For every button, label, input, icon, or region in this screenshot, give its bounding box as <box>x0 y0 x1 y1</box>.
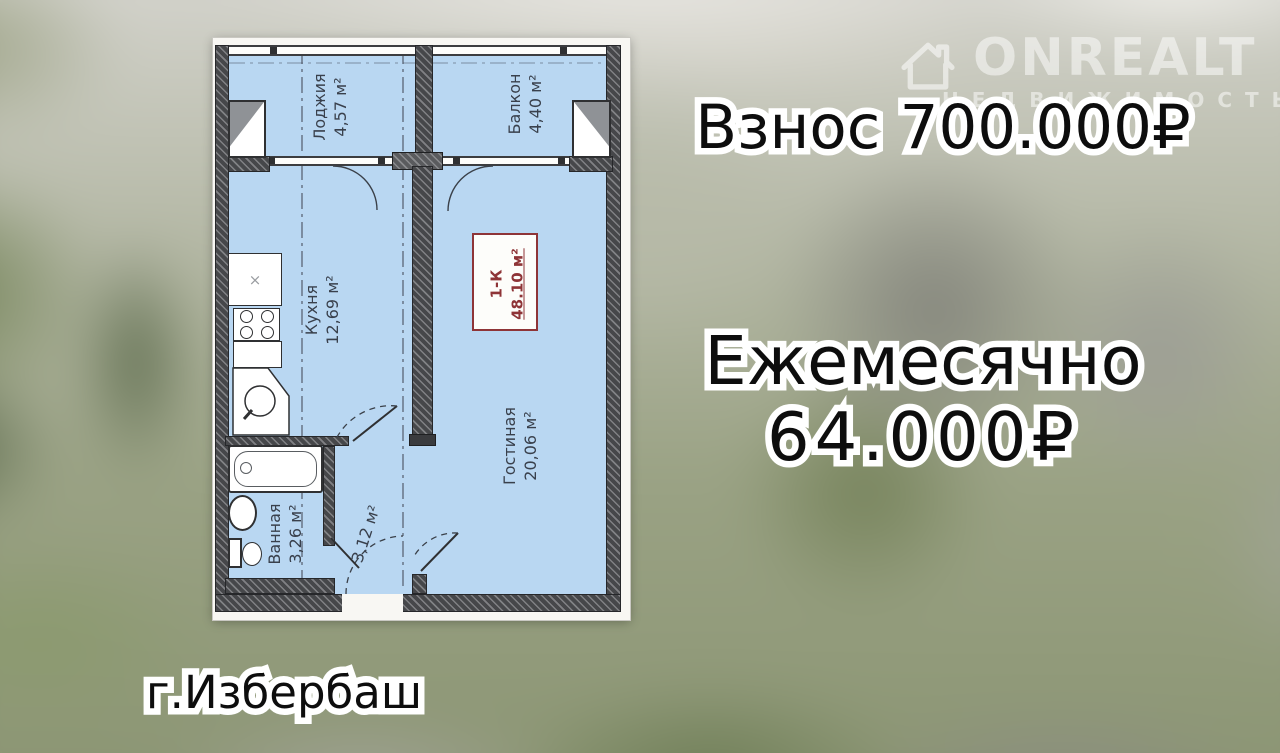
advertisement-canvas: ONREALT НЕДВИЖИМОСТЬ <box>0 0 1280 753</box>
kitchen-cabinet-icon: × <box>228 253 282 306</box>
wall-bottom <box>215 594 621 612</box>
room-area: 12,69 м² <box>324 275 342 344</box>
house-icon <box>897 32 959 94</box>
wall-cap <box>409 434 436 446</box>
unit-type: 1-К <box>488 270 506 299</box>
toilet-bowl <box>242 542 262 566</box>
window-fold <box>574 102 609 156</box>
wall-kitchen-living <box>412 166 433 436</box>
window-fold <box>230 102 264 156</box>
room-label-living: Гостиная 20,06 м² <box>501 407 539 485</box>
window-balcony-icon <box>572 100 611 158</box>
unit-area: 48.10 м² <box>509 248 527 320</box>
sill-post <box>558 157 565 164</box>
floor-plan: × Лоджия <box>213 38 630 620</box>
unit-label-box: 1-К 48.10 м² <box>472 233 538 331</box>
wall-stub-bottom <box>412 574 427 594</box>
down-payment-text: Взнос 700.000₽ <box>638 92 1248 163</box>
burner-icon <box>240 310 253 323</box>
wall-left <box>215 45 229 611</box>
kitchen-counter-icon <box>233 341 282 368</box>
city-text: г.Избербаш <box>146 666 422 719</box>
washbasin-icon <box>228 495 257 531</box>
window-stub-right <box>569 156 613 172</box>
room-label-loggia: Лоджия 4,57 м² <box>311 73 349 140</box>
wall-bath-right <box>323 446 335 546</box>
room-area: 3,26 м² <box>287 504 305 563</box>
sill-post <box>560 47 567 54</box>
room-area: 20,06 м² <box>522 411 540 480</box>
monthly-amount-text: 64.000₽ <box>628 398 1218 476</box>
burner-icon <box>261 310 274 323</box>
brand-text: ONREALT <box>973 28 1258 88</box>
window-stub-left <box>228 156 270 172</box>
room-name: Ванная <box>266 503 284 564</box>
room-name: Кухня <box>303 285 321 335</box>
room-name: Гостиная <box>501 407 519 485</box>
room-name: Балкон <box>506 74 524 135</box>
bathtub-drain <box>240 462 252 474</box>
monthly-label-text: Ежемесячно <box>628 322 1218 400</box>
sill-post <box>270 47 277 54</box>
room-name: Лоджия <box>311 73 329 140</box>
entry-gap <box>342 594 403 612</box>
sill-post <box>453 157 460 164</box>
room-label-bathroom: Ванная 3,26 м² <box>266 503 304 564</box>
burner-icon <box>240 326 253 339</box>
toilet-icon <box>228 538 242 568</box>
room-area: 4,40 м² <box>527 74 545 133</box>
unit-label: 1-К 48.10 м² <box>488 248 527 320</box>
burner-icon <box>261 326 274 339</box>
room-label-kitchen: Кухня 12,69 м² <box>303 275 341 344</box>
room-label-balcony: Балкон 4,40 м² <box>506 74 544 135</box>
wall-under-bath <box>225 578 335 594</box>
window-loggia-icon <box>228 100 266 158</box>
cabinet-mark: × <box>249 271 262 289</box>
room-area: 4,57 м² <box>332 77 350 136</box>
sill-post <box>378 157 385 164</box>
wall-balcony-divider <box>415 45 433 166</box>
stove-icon <box>233 308 280 341</box>
bathtub-icon <box>228 445 323 493</box>
